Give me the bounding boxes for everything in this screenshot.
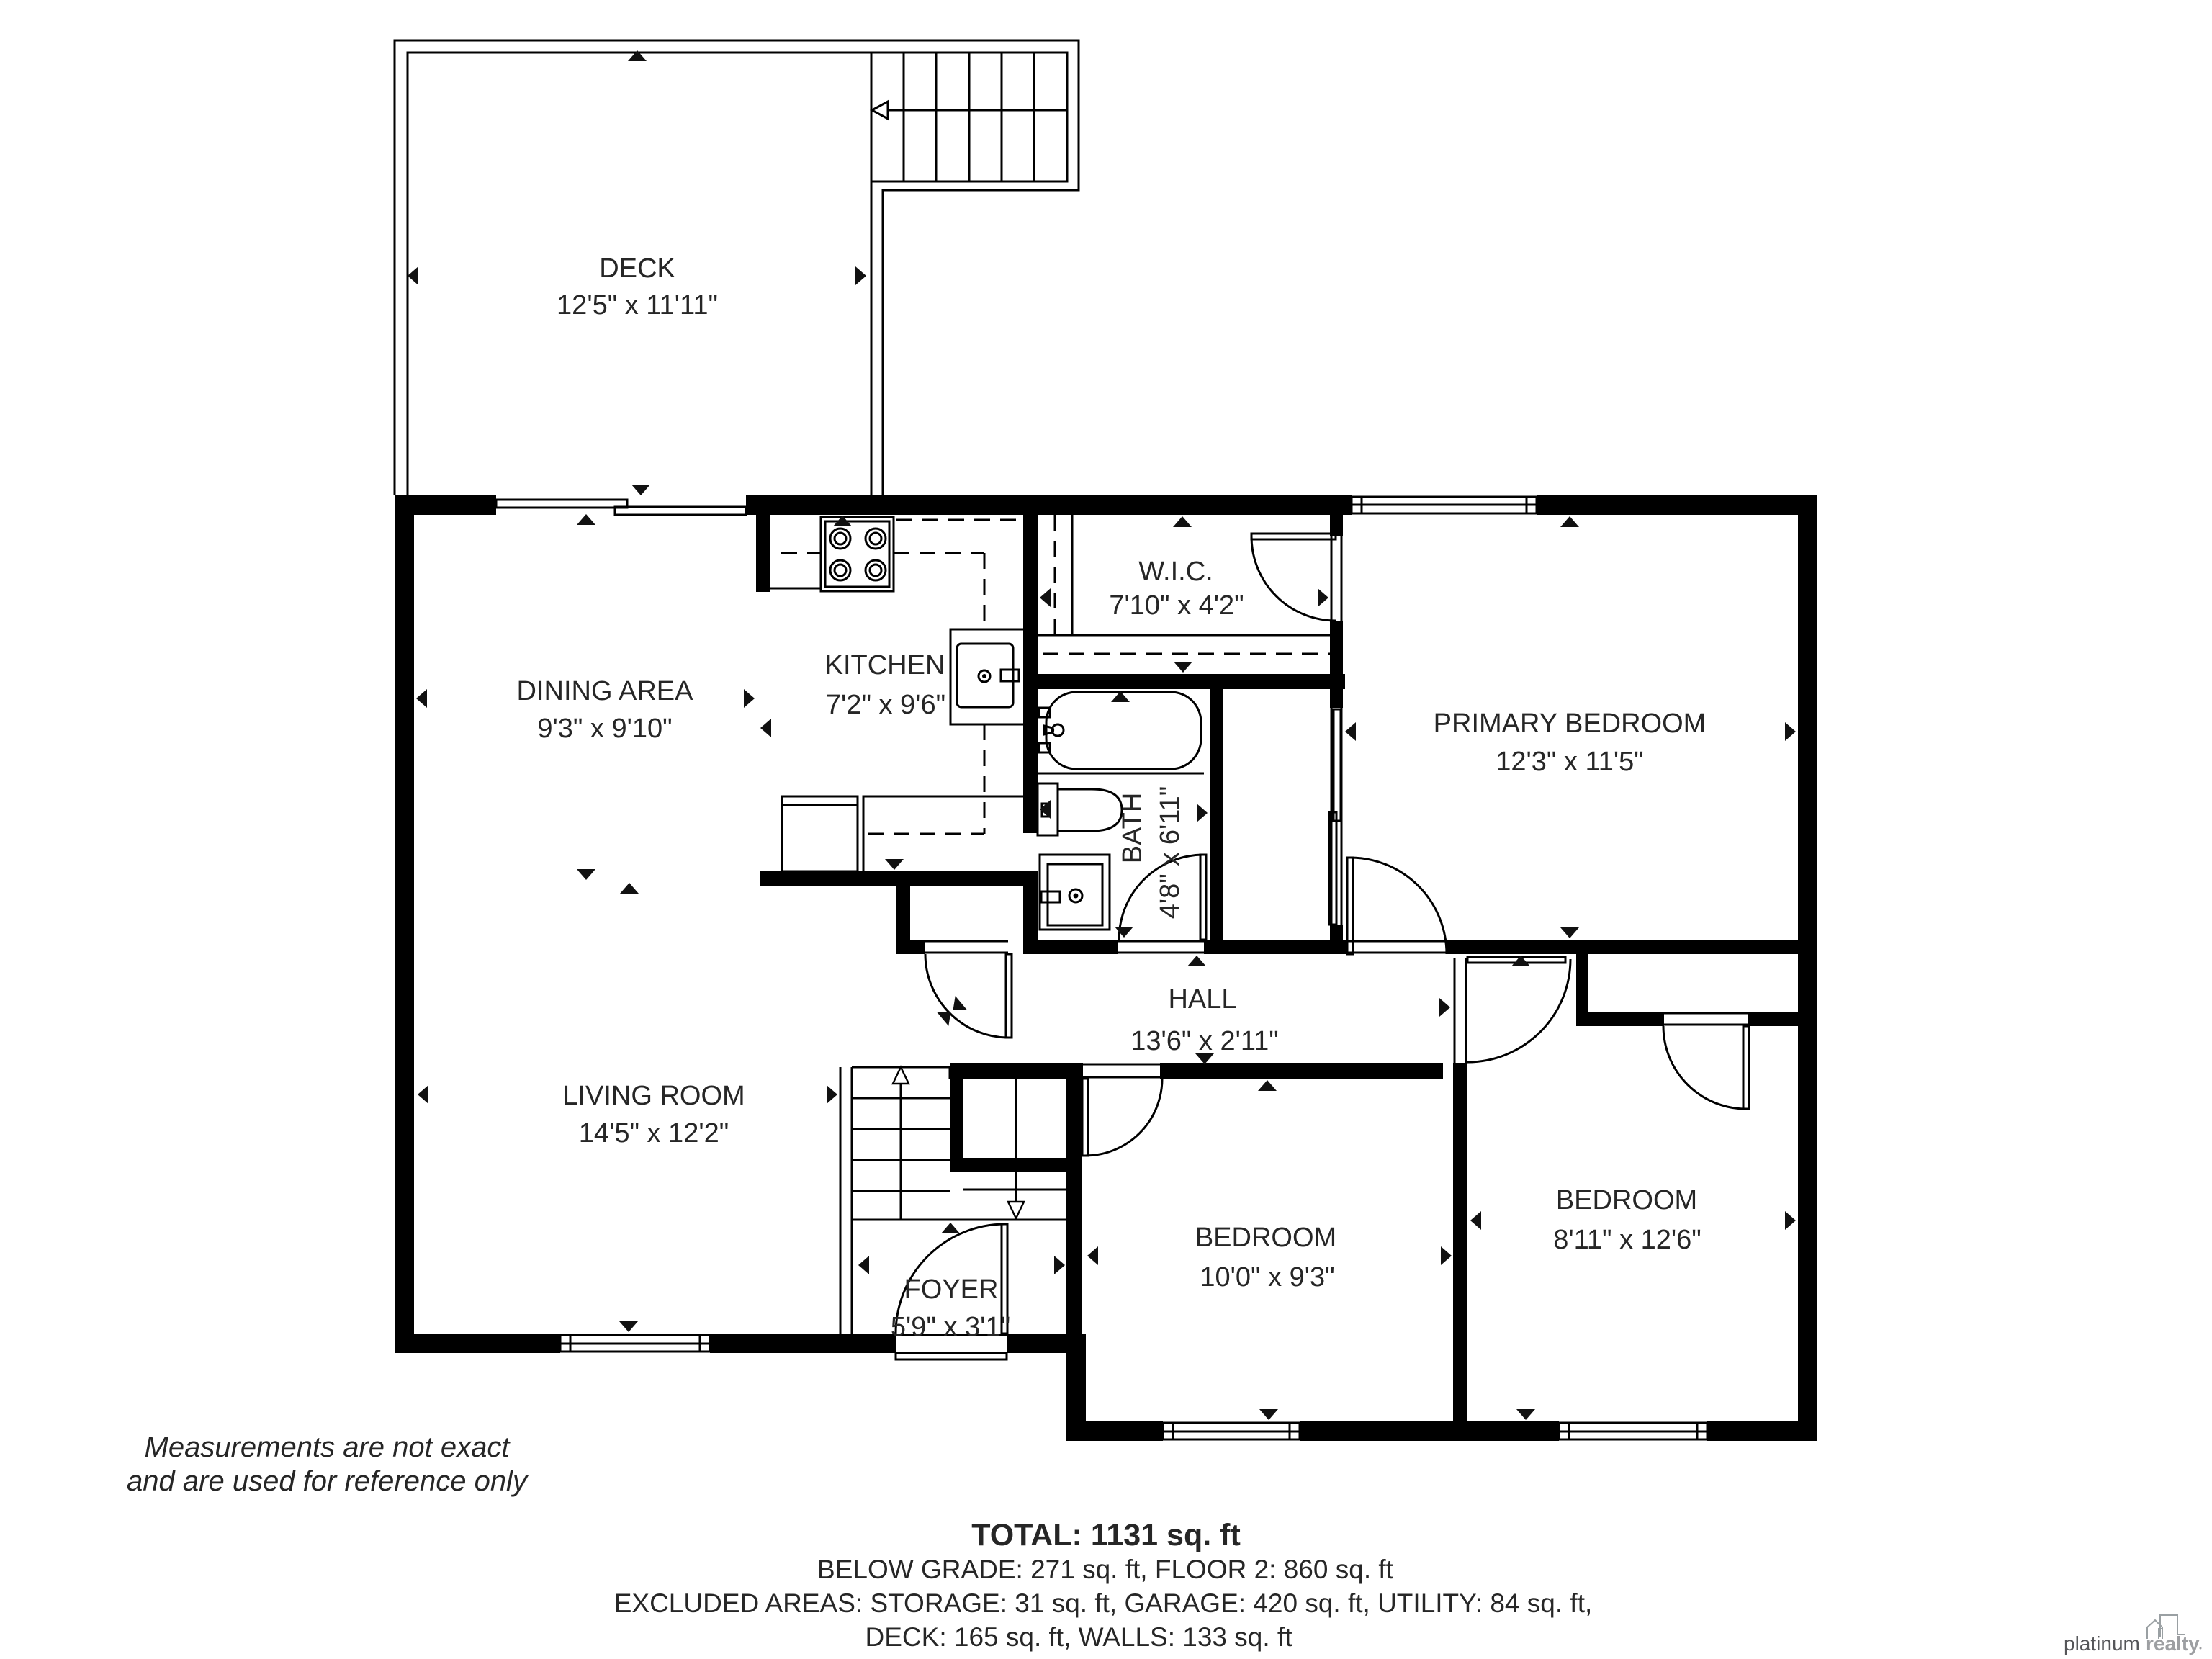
svg-text:W.I.C.: W.I.C.	[1138, 557, 1213, 587]
svg-text:DECK: 165 sq. ft, WALLS: 133 s: DECK: 165 sq. ft, WALLS: 133 sq. ft	[866, 1622, 1293, 1652]
svg-text:realty: realty	[2146, 1632, 2200, 1655]
svg-text:10'0" x 9'3": 10'0" x 9'3"	[1200, 1262, 1334, 1292]
svg-text:platinum: platinum	[2064, 1632, 2140, 1655]
svg-text:BELOW GRADE: 271 sq. ft, FLOOR: BELOW GRADE: 271 sq. ft, FLOOR 2: 860 sq…	[817, 1555, 1394, 1584]
svg-text:5'9" x 3'1": 5'9" x 3'1"	[891, 1312, 1010, 1342]
svg-text:HALL: HALL	[1168, 984, 1236, 1015]
svg-text:and are used for reference onl: and are used for reference only	[127, 1465, 529, 1497]
svg-text:13'6" x 2'11": 13'6" x 2'11"	[1130, 1026, 1279, 1056]
svg-text:BEDROOM: BEDROOM	[1556, 1185, 1697, 1215]
svg-text:Measurements are not exact: Measurements are not exact	[145, 1431, 511, 1463]
svg-text:12'5" x 11'11": 12'5" x 11'11"	[557, 290, 718, 320]
svg-text:EXCLUDED AREAS: STORAGE: 31 sq: EXCLUDED AREAS: STORAGE: 31 sq. ft, GARA…	[614, 1588, 1593, 1618]
svg-text:12'3" x 11'5": 12'3" x 11'5"	[1496, 747, 1644, 777]
svg-text:DECK: DECK	[599, 253, 675, 284]
svg-text:FOYER: FOYER	[904, 1274, 999, 1305]
svg-text:8'11" x 12'6": 8'11" x 12'6"	[1553, 1225, 1701, 1255]
svg-text:LIVING ROOM: LIVING ROOM	[562, 1081, 745, 1111]
svg-text:PRIMARY BEDROOM: PRIMARY BEDROOM	[1434, 709, 1707, 739]
svg-text:7'2" x 9'6": 7'2" x 9'6"	[826, 690, 945, 720]
svg-text:BEDROOM: BEDROOM	[1195, 1223, 1336, 1253]
svg-text:DINING AREA: DINING AREA	[517, 676, 694, 706]
svg-text:4'8" x 6'11": 4'8" x 6'11"	[1155, 786, 1185, 919]
svg-text:9'3" x 9'10": 9'3" x 9'10"	[537, 714, 672, 744]
svg-text:14'5" x 12'2": 14'5" x 12'2"	[579, 1118, 729, 1148]
svg-text:TOTAL: 1131 sq. ft: TOTAL: 1131 sq. ft	[971, 1518, 1241, 1552]
svg-text:7'10" x 4'2": 7'10" x 4'2"	[1109, 590, 1244, 621]
svg-text:BATH: BATH	[1118, 793, 1148, 864]
svg-text:KITCHEN: KITCHEN	[825, 650, 945, 680]
